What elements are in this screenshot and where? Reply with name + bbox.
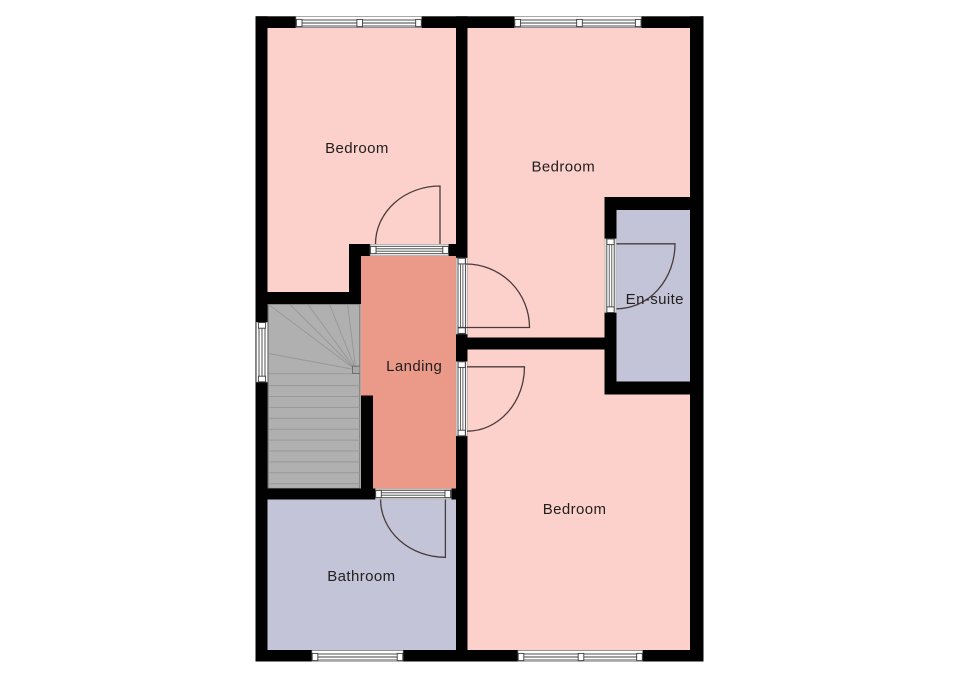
svg-text:Bedroom: Bedroom bbox=[531, 158, 595, 175]
svg-text:En-suite: En-suite bbox=[626, 291, 684, 308]
svg-text:Bathroom: Bathroom bbox=[327, 568, 395, 585]
svg-text:Bedroom: Bedroom bbox=[543, 501, 607, 518]
svg-text:Landing: Landing bbox=[386, 358, 442, 375]
svg-text:Bedroom: Bedroom bbox=[325, 140, 389, 157]
